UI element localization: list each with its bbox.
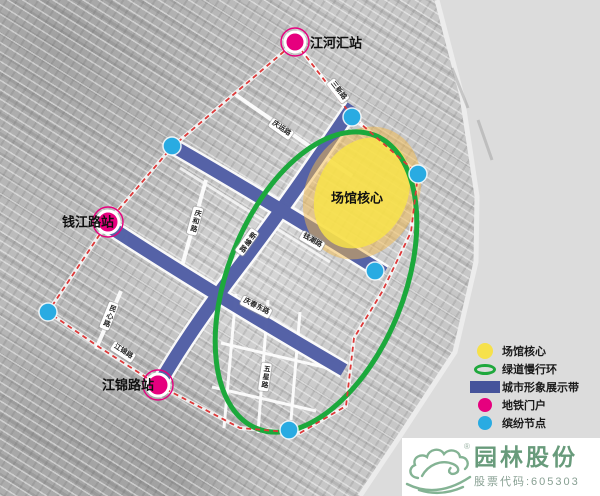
- colorful-node: [39, 303, 57, 321]
- planning-map: 江河汇站 钱江路站 江锦路站 场馆核心 三新路 庆运路 庆和路 新塘路 钱潮路 …: [0, 0, 600, 496]
- colorful-node: [409, 165, 427, 183]
- station-label-jiangjinlu: 江锦路站: [102, 379, 154, 392]
- company-name: 园林股份: [474, 445, 580, 469]
- colorful-node: [280, 421, 298, 439]
- legend-item-metro-gateway: 地铁门户: [468, 396, 600, 414]
- legend-item-greenway-ring: 绿道慢行环: [468, 360, 600, 378]
- legend-label: 城市形象展示带: [502, 379, 579, 395]
- metro-gateway-icon: [468, 398, 502, 412]
- venue-core-label: 场馆核心: [331, 192, 383, 205]
- legend-item-city-image-belt: 城市形象展示带: [468, 378, 600, 396]
- colorful-node: [366, 262, 384, 280]
- legend-item-colorful-node: 缤纷节点: [468, 414, 600, 432]
- venue-core-icon: [468, 343, 502, 359]
- station-label-qianjianglu: 钱江路站: [62, 216, 114, 229]
- legend-label: 场馆核心: [502, 343, 546, 359]
- registered-mark: ®: [464, 442, 470, 451]
- stock-code: 股票代码:605303: [474, 473, 580, 489]
- station-label-jianghehui: 江河汇站: [310, 37, 362, 50]
- legend-label: 绿道慢行环: [502, 361, 557, 377]
- colorful-node-icon: [468, 416, 502, 430]
- greenway-ring-icon: [468, 364, 502, 375]
- legend-item-venue-core: 场馆核心: [468, 342, 600, 360]
- colorful-node: [343, 108, 361, 126]
- legend: 场馆核心 绿道慢行环 城市形象展示带 地铁门户 缤纷节点: [468, 342, 600, 432]
- legend-label: 地铁门户: [502, 397, 546, 413]
- legend-label: 缤纷节点: [502, 415, 546, 431]
- city-image-belt-icon: [468, 381, 502, 393]
- colorful-node: [163, 137, 181, 155]
- cloud-logo-icon: ®: [402, 439, 474, 495]
- company-watermark: ® 园林股份 股票代码:605303: [402, 438, 600, 496]
